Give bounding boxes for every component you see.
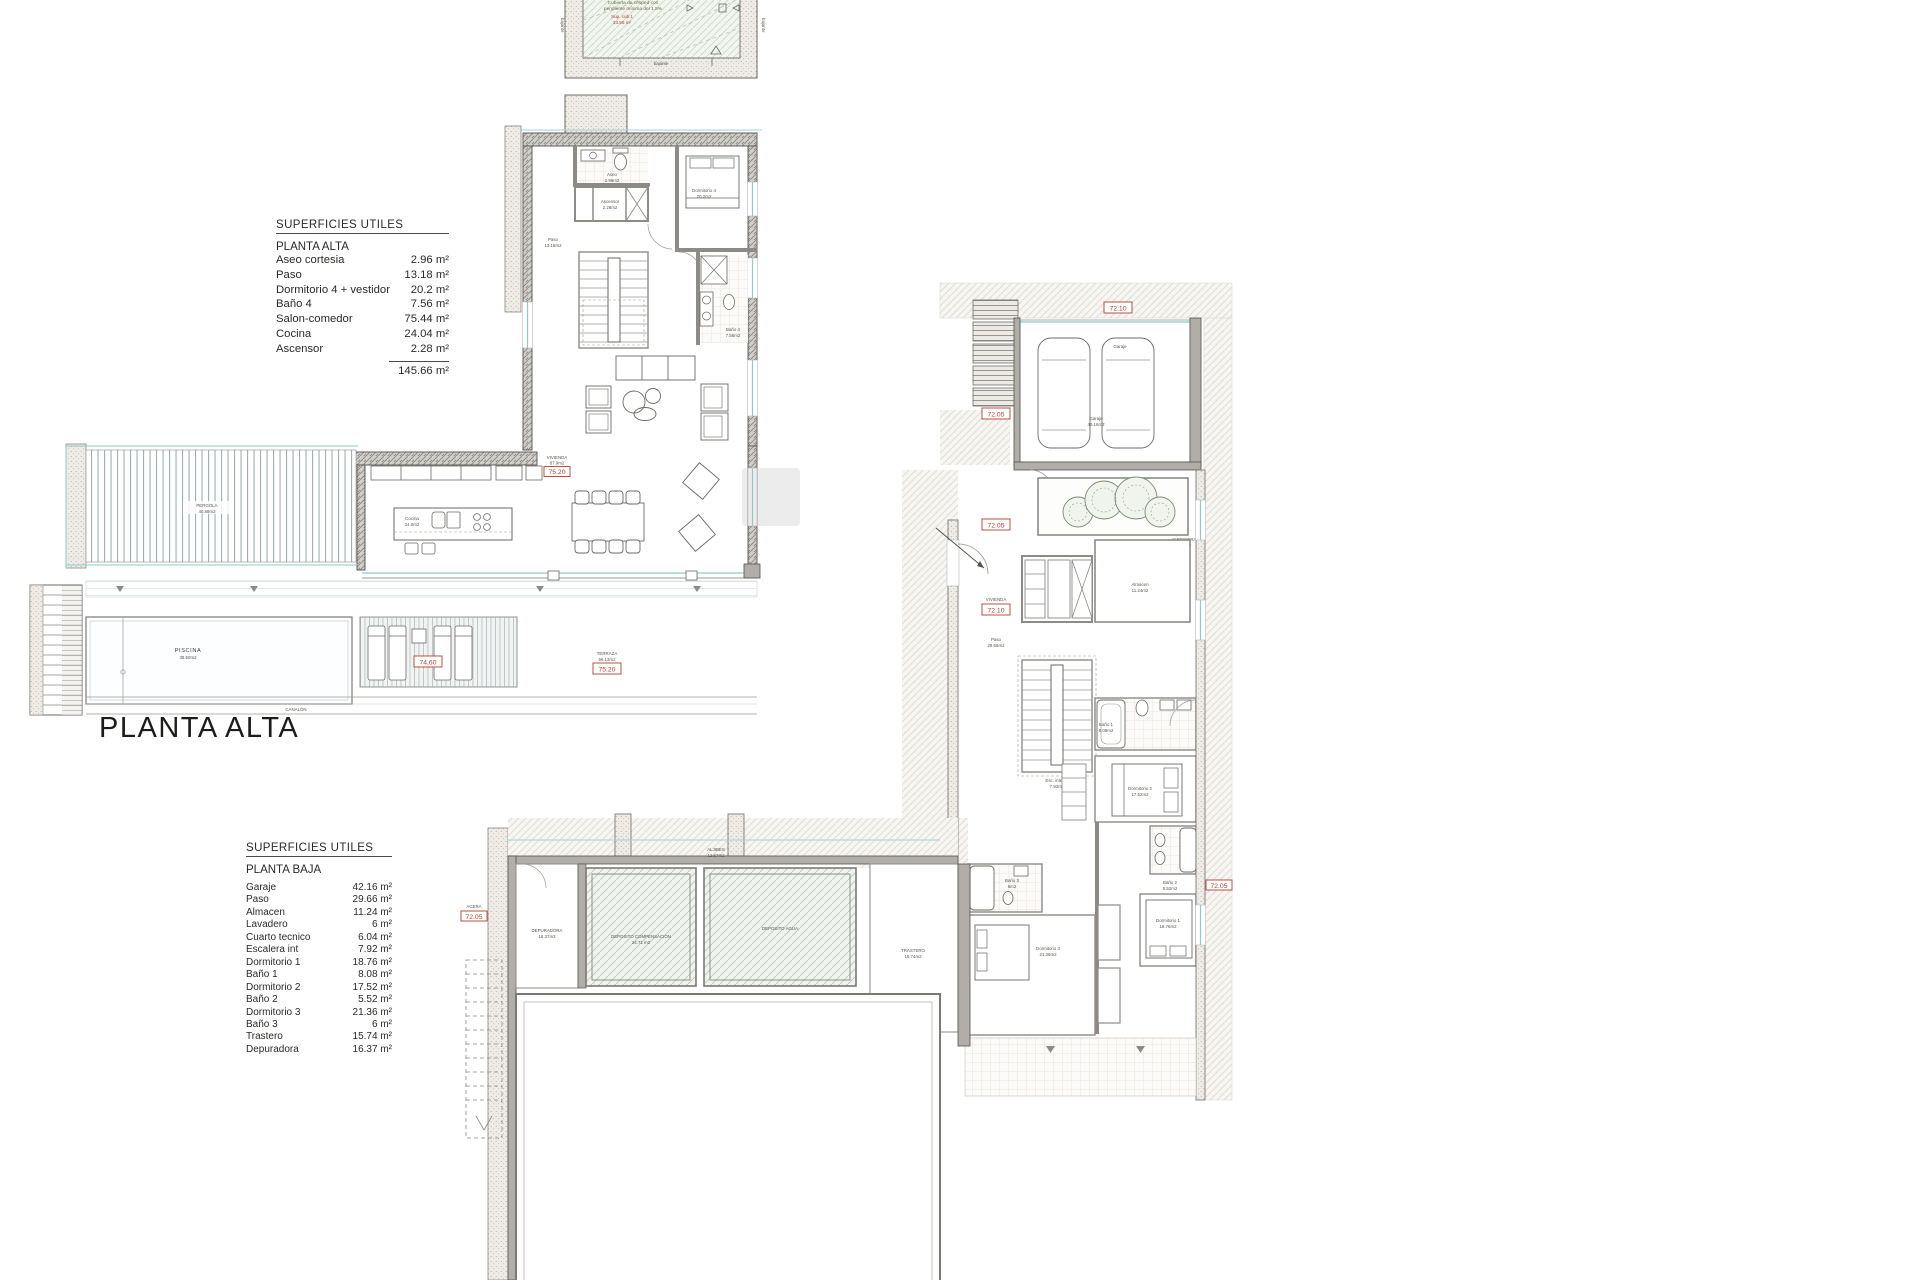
- sink-icon: [1160, 700, 1174, 710]
- svg-text:72.10: 72.10: [1109, 306, 1126, 313]
- toilet-icon: [1155, 834, 1165, 847]
- bano2-label: Baño 2: [1163, 880, 1177, 885]
- pergola-terrace: PERGOLA 40.88m2: [66, 444, 358, 568]
- entry-arrow-icon: [977, 561, 984, 568]
- svg-text:DEPOSITO AGUA: DEPOSITO AGUA: [762, 926, 798, 931]
- bano3-label: Baño 3: [1005, 878, 1019, 883]
- surface-table-planta-alta: SUPERFICIES UTILES PLANTA ALTA Aseo cort…: [276, 219, 449, 377]
- vivienda-label: VIVIENDA: [986, 597, 1007, 602]
- bano4-label: Baño 4: [726, 327, 740, 332]
- roof-bajante-label: bajante: [654, 61, 669, 66]
- car-icon: [1102, 338, 1154, 448]
- paso-value: 13.18m2: [544, 243, 562, 248]
- table-title: SUPERFICIES UTILES: [276, 219, 449, 234]
- watermark: [742, 468, 800, 526]
- sun-lounger-icon: [368, 626, 385, 680]
- level-value: 75.20: [598, 667, 615, 674]
- pool: PISCINA 38.50m2: [86, 617, 352, 704]
- ascensor-value: 2.28m2: [603, 205, 618, 210]
- table-row: Cocina24.04 m²: [276, 327, 449, 342]
- svg-text:56.13m2: 56.13m2: [598, 657, 616, 662]
- dormitorio2-room: Dormitorio 2 17.52m2: [1062, 756, 1196, 822]
- garaje-value: 42.16m2: [1087, 422, 1105, 427]
- washbasin-icon: [581, 150, 605, 161]
- bano4-room: Baño 4 7.56m2: [696, 252, 748, 345]
- almacen-value: 11.24m2: [1132, 588, 1149, 593]
- piscina-value: 38.50m2: [179, 655, 197, 660]
- table-row: Dormitorio 118.76 m²: [246, 957, 392, 969]
- table-row: Dormitorio 4 + vestidor20.2 m²: [276, 283, 449, 298]
- dining-table-icon: [572, 503, 644, 541]
- garage: Garaje Garaje 42.16m2: [1014, 318, 1201, 494]
- table-row: Trastero15.74 m²: [246, 1031, 392, 1043]
- toilet-icon: [1003, 892, 1013, 905]
- glass-wall: [362, 564, 760, 580]
- svg-text:72.05: 72.05: [987, 523, 1004, 530]
- level-value: 75.20: [548, 469, 565, 476]
- corner-post: [744, 564, 760, 578]
- corridor-closets: [1095, 822, 1120, 1034]
- basement-top-wall: [508, 856, 958, 864]
- svg-text:ACERA: ACERA: [466, 904, 481, 909]
- tree-icon: [1145, 497, 1175, 527]
- roof-bajante-left: bajante: [560, 18, 565, 33]
- exterior-stair-left: [30, 585, 82, 715]
- bano3-room: Baño 3 6m2: [968, 864, 1042, 912]
- bano3-value: 6m2: [1008, 884, 1017, 889]
- toilet-tank-icon: [613, 148, 628, 153]
- dormitorio4-room: Dormitorio 4 20.2m2: [675, 146, 757, 274]
- almacen-label: Almacen: [1131, 582, 1149, 587]
- bed-icon: [1146, 900, 1192, 958]
- side-table-icon: [412, 629, 426, 643]
- lounge-chair-icon: [679, 515, 716, 552]
- table-row: Baño 36 m²: [246, 1019, 392, 1031]
- bed-icon: [975, 925, 1029, 980]
- svg-text:72.10: 72.10: [987, 608, 1004, 615]
- almacen-room: [1095, 540, 1190, 622]
- dormitorio3-room: Dormitorio 3 21.36m2: [968, 915, 1095, 1035]
- table-row: Cuarto tecnico6.04 m²: [246, 932, 392, 944]
- table-total: 145.66 m²: [276, 361, 449, 377]
- vanity-icon: [700, 292, 713, 326]
- jardinera: JARDINERA 7.18m2: [1038, 477, 1197, 548]
- wall: [578, 864, 586, 988]
- planta-alta-plan: Aseo 2.96m2 Ascensor 2.28m2 Paso 13.18m2…: [30, 126, 800, 715]
- table-row: Dormitorio 321.36 m²: [246, 1007, 392, 1019]
- table-row: Aseo cortesia2.96 m²: [276, 253, 449, 268]
- depuradora-room: DEPURADORA 16.37m2: [516, 864, 578, 988]
- door-arc: [648, 224, 672, 249]
- table-row: Paso13.18 m²: [276, 268, 449, 283]
- svg-text:72.05: 72.05: [987, 412, 1004, 419]
- cocina-value: 24.0m2: [405, 522, 420, 527]
- svg-text:DEPURADORA: DEPURADORA: [532, 928, 563, 933]
- table-row: Paso29.66 m²: [246, 894, 392, 906]
- heavy-wall: [958, 864, 970, 1046]
- stool-icon: [422, 543, 435, 554]
- bano1-label: Baño 1: [1099, 722, 1113, 727]
- svg-text:24.71 m2: 24.71 m2: [632, 940, 651, 945]
- roof-detail-plan: Cubierta de césped con pendiente mínima …: [560, 0, 766, 140]
- dining-set: [572, 491, 644, 553]
- table-row: Baño 25.52 m²: [246, 994, 392, 1006]
- table-row: Garaje42.16 m²: [246, 882, 392, 894]
- aljibes-label: ALJIBES: [707, 847, 725, 852]
- bano4-value: 7.56m2: [726, 333, 741, 338]
- table-row: Escalera int7.92 m²: [246, 944, 392, 956]
- table-subtitle: PLANTA ALTA: [276, 241, 449, 253]
- sun-deck: 74,60: [360, 617, 517, 687]
- sink-icon: [1177, 700, 1191, 710]
- vivienda-label: VIVIENDA: [547, 455, 568, 460]
- mullion: [686, 571, 697, 580]
- ascensor-label: Ascensor: [601, 199, 620, 204]
- aseo-value: 2.96m2: [605, 178, 620, 183]
- bano2-value: 5.52m2: [1163, 886, 1178, 891]
- dorm2-value: 17.52m2: [1131, 792, 1149, 797]
- svg-text:PERGOLA: PERGOLA: [196, 503, 217, 508]
- neighbor-wall-band: [505, 126, 521, 312]
- sun-lounger-icon: [434, 626, 451, 680]
- basement-pool: [516, 994, 940, 1280]
- roof-note-line2: pendiente mínima del 1.5%: [604, 6, 663, 12]
- entry-level-label: 72.05 VIVIENDA 72.10: [982, 519, 1010, 615]
- table-row: Lavadero6 m²: [246, 919, 392, 931]
- sectional-icon: [701, 384, 728, 411]
- basement-left-band: [488, 828, 508, 1280]
- aseo-room: Aseo 2.96m2: [573, 146, 650, 187]
- piscina-label: PISCINA: [175, 648, 202, 654]
- sun-lounger-icon: [389, 626, 406, 680]
- basement-left-wall: [508, 856, 516, 1280]
- dorm3-label: Dormitorio 3: [1036, 946, 1060, 951]
- car-icon: [1038, 338, 1090, 448]
- cocina-label: Cocina: [405, 516, 419, 521]
- dorm4-label: Dormitorio 4: [692, 188, 716, 193]
- table-row: Dormitorio 217.52 m²: [246, 982, 392, 994]
- svg-text:40.88m2: 40.88m2: [198, 509, 216, 514]
- garaje-top-label: Garaje: [1113, 344, 1127, 349]
- coffee-table-icon: [623, 391, 645, 413]
- mullion: [548, 571, 559, 580]
- acera-level: ACERA 72.05: [461, 904, 487, 921]
- terrace-band: [86, 581, 757, 597]
- sun-lounger-icon: [455, 626, 472, 680]
- svg-text:TRASTERO: TRASTERO: [901, 948, 925, 953]
- table-title: SUPERFICIES UTILES: [246, 842, 392, 857]
- dorm1-value: 18.76m2: [1159, 924, 1177, 929]
- table-row: Almacen11.24 m²: [246, 907, 392, 919]
- kitchen: Cocina 24.0m2: [371, 466, 542, 554]
- toilet-icon: [615, 154, 627, 170]
- svg-text:15.74m2: 15.74m2: [904, 954, 922, 959]
- svg-text:16.37m2: 16.37m2: [538, 934, 556, 939]
- svg-text:TERRAZA: TERRAZA: [597, 651, 618, 656]
- paso-baja-value: 29.66m2: [987, 643, 1005, 648]
- ascensor-block: Ascensor 2.28m2: [575, 187, 648, 221]
- dorm3-value: 21.36m2: [1039, 952, 1057, 957]
- salon-level-label: VIVIENDA 87.9m2 75.20: [544, 455, 570, 477]
- deposito-agua: DEPOSITO AGUA: [704, 868, 856, 986]
- pergola-label: PERGOLA 40.88m2: [183, 501, 231, 514]
- sofa-icon: [616, 356, 695, 380]
- roof-note-line1: Cubierta de césped con: [608, 0, 659, 6]
- svg-text:72.05: 72.05: [465, 914, 482, 921]
- roof-sup-value: 33.55 m²: [613, 20, 632, 25]
- closet-icon: [1098, 905, 1120, 960]
- wall-stub: [615, 814, 631, 856]
- lounge-chair-icon: [683, 463, 720, 500]
- exterior-steps: 72.05: [973, 300, 1018, 419]
- dorm1-label: Dormitorio 1: [1156, 918, 1180, 923]
- entry-opening: [947, 540, 959, 586]
- bano2-room: Baño 2 5.52m2: [1150, 826, 1196, 891]
- roof-bajante-right: bajante: [761, 18, 766, 33]
- bidet-icon: [1155, 852, 1165, 865]
- toilet-icon: [724, 295, 735, 310]
- surface-table-planta-baja: SUPERFICIES UTILES PLANTA BAJA Garaje42.…: [246, 842, 392, 1056]
- table-row: Ascensor2.28 m²: [276, 342, 449, 357]
- terraza-label: TERRAZA 56.13m2 75.20: [593, 651, 621, 674]
- bathtub-icon: [1180, 828, 1196, 872]
- svg-text:72.05: 72.05: [1210, 883, 1227, 890]
- almacen-block: Almacen 11.24m2: [1022, 540, 1190, 622]
- drawing-sheet: Cubierta de césped con pendiente mínima …: [0, 0, 1920, 1280]
- deposito-compensacion: DEPOSITO COMPENSACION 24.71 m2: [586, 868, 696, 986]
- wall-stub: [728, 814, 744, 856]
- table-row: Baño 18.08 m²: [246, 969, 392, 981]
- plan-title: PLANTA ALTA: [99, 712, 299, 745]
- baja-terrace: [965, 1038, 1196, 1096]
- level-value: 74,60: [419, 660, 436, 667]
- closet-icon: [1098, 968, 1120, 1023]
- garage-south-wall: [1014, 462, 1201, 470]
- alta-stairs: [579, 252, 648, 348]
- bano1-room: Baño 1 8.08m2: [1095, 698, 1196, 750]
- aseo-label: Aseo: [607, 172, 618, 177]
- paso-label: Paso: [548, 237, 559, 242]
- vivienda-value: 87.9m2: [550, 461, 565, 466]
- dorm2-label: Dormitorio 2: [1128, 786, 1152, 791]
- table-subtitle: PLANTA BAJA: [246, 864, 392, 876]
- table-row: Baño 47.56 m²: [276, 297, 449, 312]
- bano1-value: 8.08m2: [1099, 728, 1114, 733]
- svg-text:DEPOSITO COMPENSACION: DEPOSITO COMPENSACION: [611, 934, 671, 939]
- floor-plan-canvas: Cubierta de césped con pendiente mínima …: [0, 0, 1920, 1280]
- roof-sup-label: Sup. cub 1: [611, 14, 633, 19]
- stool-icon: [405, 543, 418, 554]
- dorm4-value: 20.2m2: [697, 194, 712, 199]
- table-row: Salon-comedor75.44 m²: [276, 312, 449, 327]
- sink-icon: [1014, 866, 1028, 876]
- table-row: Depuradora16.37 m²: [246, 1044, 392, 1056]
- toilet-icon: [1136, 700, 1148, 716]
- bathtub-icon: [970, 866, 994, 910]
- dormitorio1-room: Dormitorio 1 18.76m2: [1140, 894, 1196, 966]
- paso-baja-label: Paso: [991, 637, 1002, 642]
- garaje-label: Garaje: [1089, 416, 1103, 421]
- wall-cabinets: [371, 466, 542, 480]
- aljibes-value: 12.57m2: [707, 853, 725, 858]
- bed-icon: [686, 156, 739, 208]
- basement-plan: DEPURADORA 16.37m2 DEPOSITO COMPENSACION…: [461, 814, 970, 1280]
